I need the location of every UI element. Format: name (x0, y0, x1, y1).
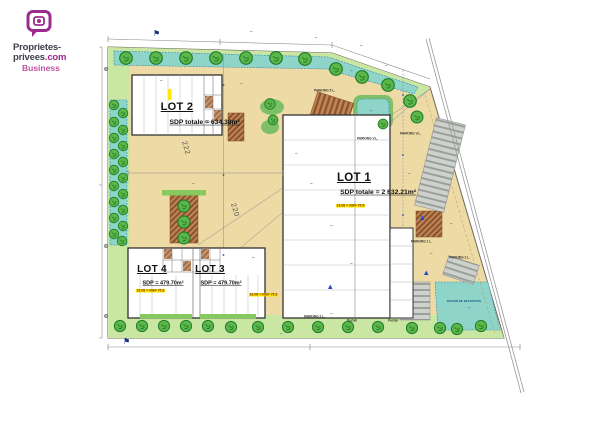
parking-5l-label: PARKING 5 L. (314, 89, 335, 92)
brand-line2: privees.com (13, 53, 99, 63)
flag-marker-icon-top: ⚑ (153, 29, 160, 38)
brand-logo: Proprietes- privees.com Business (13, 10, 99, 73)
parking-2l-label-2: PARKING 2 L. (449, 256, 470, 259)
lot3-sdp: SDP = 479.70m² (180, 276, 240, 294)
parking-2l-label-3: PARKING 2 L. (304, 315, 325, 318)
lot3-title: LOT 3 (188, 264, 232, 275)
parking-2l-label-1: PARKING 2 L. (411, 240, 432, 243)
lot1-level-note: 16.08 = NGF 75.6 (336, 204, 365, 208)
flag-marker-icon-bottom: ⚑ (123, 337, 130, 346)
lot4-title: LOT 4 (130, 264, 174, 275)
portail-label-2: Portail (388, 319, 398, 322)
lot4-level-note: 16.08 = NGF 75.6 (136, 289, 165, 293)
bassin-label: BASSIN DE RETENTION (447, 300, 481, 303)
site-plan: LOT 2 SDP totale = 634.38m² LOT 1 SDP to… (100, 25, 540, 395)
site-plan-graphics (100, 25, 540, 395)
camera-bubble-icon (26, 10, 52, 38)
lot2-sdp: SDP totale = 634.38m² (137, 117, 217, 135)
retention-basin-shape (435, 282, 500, 330)
parking-vl-label-2: PARKING V.L. (400, 132, 421, 135)
portail-label-1: Portail (347, 319, 357, 322)
brand-com: .com (45, 52, 66, 63)
parking-vl-label-1: PARKING V.L. (357, 137, 378, 140)
lot1-sdp: SDP totale = 2 632.21m² (305, 187, 403, 205)
listing-plan-image: Proprietes- privees.com Business (0, 0, 600, 424)
lot2-title: LOT 2 (147, 101, 207, 113)
brand-tagline: Business (22, 63, 99, 73)
lot1-title: LOT 1 (325, 172, 383, 184)
lot3-level-note: 16.08 = NGF 75.6 (249, 293, 278, 297)
